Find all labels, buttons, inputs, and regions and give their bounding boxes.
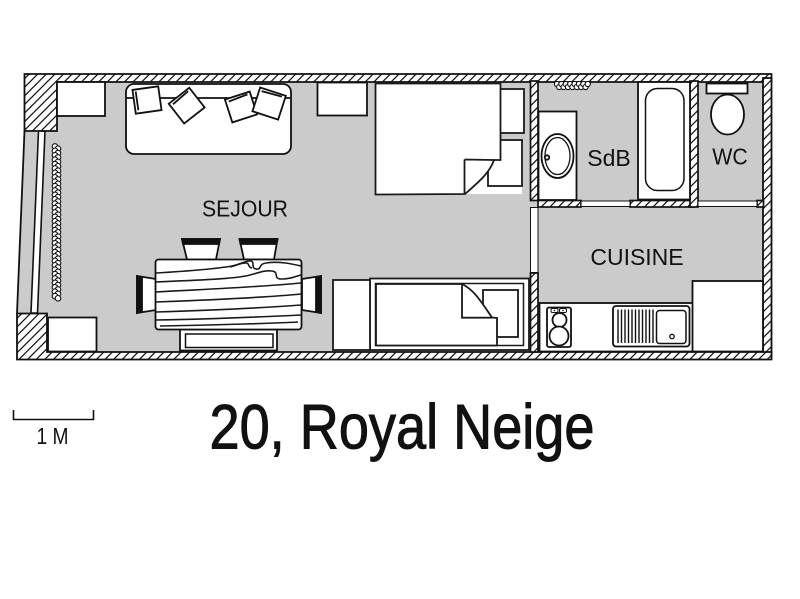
svg-text:WC: WC xyxy=(712,144,748,170)
svg-text:1 M: 1 M xyxy=(37,423,69,449)
svg-text:CUISINE: CUISINE xyxy=(590,244,683,270)
svg-text:SdB: SdB xyxy=(587,145,630,171)
svg-text:SEJOUR: SEJOUR xyxy=(202,196,288,222)
svg-text:20, Royal Neige: 20, Royal Neige xyxy=(210,393,595,463)
